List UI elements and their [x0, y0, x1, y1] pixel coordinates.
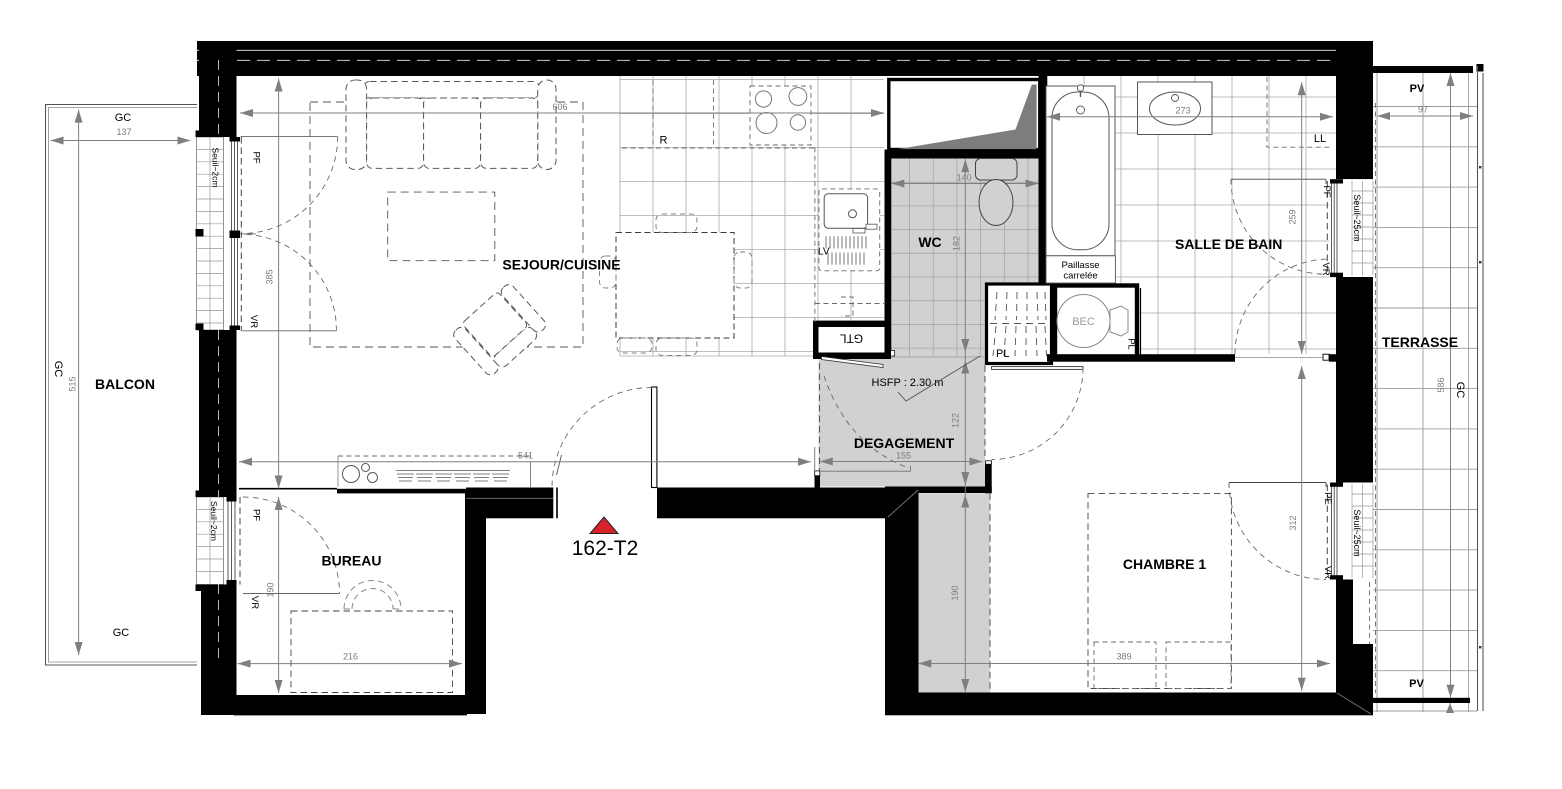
svg-text:PF: PF — [1321, 185, 1332, 197]
svg-text:182: 182 — [952, 236, 962, 251]
svg-text:GTL: GTL — [840, 332, 864, 346]
svg-text:GC: GC — [52, 361, 64, 378]
svg-text:515: 515 — [68, 376, 78, 391]
svg-text:312: 312 — [1288, 515, 1298, 530]
svg-text:Seuil~25cm: Seuil~25cm — [1352, 194, 1362, 241]
svg-text:R: R — [660, 135, 668, 147]
svg-text:SEJOUR/CUISINE: SEJOUR/CUISINE — [502, 257, 620, 273]
svg-text:SALLE DE BAIN: SALLE DE BAIN — [1175, 236, 1282, 252]
svg-text:606: 606 — [552, 102, 567, 112]
svg-text:273: 273 — [1175, 106, 1190, 116]
svg-text:Seuil~2cm: Seuil~2cm — [209, 501, 219, 541]
svg-text:LL: LL — [1314, 133, 1326, 145]
svg-text:carrelée: carrelée — [1063, 271, 1097, 282]
svg-text:385: 385 — [265, 269, 275, 284]
svg-text:VR: VR — [1322, 566, 1333, 579]
svg-text:162-T2: 162-T2 — [572, 537, 639, 560]
svg-text:259: 259 — [1288, 209, 1298, 224]
svg-text:190: 190 — [266, 582, 276, 597]
svg-text:VR: VR — [248, 315, 259, 328]
svg-text:CHAMBRE 1: CHAMBRE 1 — [1123, 556, 1206, 572]
svg-text:BEC: BEC — [1072, 316, 1095, 328]
svg-text:GC: GC — [1454, 382, 1466, 399]
svg-text:PE: PE — [1322, 492, 1333, 505]
svg-text:541: 541 — [518, 451, 533, 461]
svg-text:Paillasse: Paillasse — [1061, 260, 1099, 271]
svg-text:389: 389 — [1116, 652, 1131, 662]
svg-text:137: 137 — [116, 127, 131, 137]
svg-text:216: 216 — [343, 652, 358, 662]
svg-text:TERRASSE: TERRASSE — [1382, 334, 1458, 350]
svg-text:PL: PL — [1126, 338, 1137, 350]
svg-text:PF: PF — [251, 151, 262, 163]
svg-text:WC: WC — [918, 234, 941, 250]
svg-text:HSFP : 2.30 m: HSFP : 2.30 m — [872, 377, 944, 389]
svg-text:586: 586 — [1436, 377, 1446, 392]
svg-text:PV: PV — [1410, 83, 1425, 95]
svg-text:140: 140 — [956, 173, 971, 183]
svg-text:PF: PF — [251, 509, 262, 521]
svg-text:BALCON: BALCON — [95, 376, 155, 392]
svg-text:BUREAU: BUREAU — [322, 553, 382, 569]
svg-text:PV: PV — [1409, 678, 1424, 690]
svg-text:Seuil~25cm: Seuil~25cm — [1352, 509, 1362, 556]
svg-text:190: 190 — [950, 585, 960, 600]
svg-text:DEGAGEMENT: DEGAGEMENT — [854, 435, 955, 451]
svg-text:GC: GC — [113, 627, 130, 639]
svg-text:PL: PL — [996, 348, 1009, 360]
svg-text:Seuil~2cm: Seuil~2cm — [211, 148, 221, 188]
svg-text:LV: LV — [818, 247, 830, 258]
svg-text:GC: GC — [115, 112, 132, 124]
svg-text:155: 155 — [896, 451, 911, 461]
svg-text:97: 97 — [1418, 105, 1428, 115]
svg-text:VR: VR — [1320, 262, 1331, 275]
svg-text:VR: VR — [249, 596, 260, 609]
svg-text:122: 122 — [951, 413, 961, 428]
